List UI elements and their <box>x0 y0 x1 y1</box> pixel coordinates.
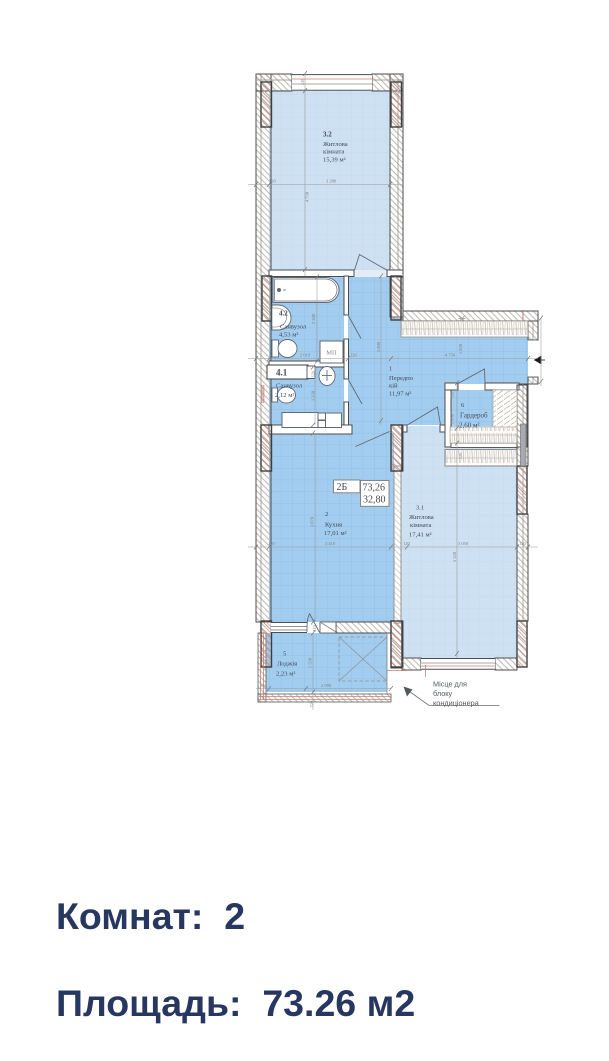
svg-text:3 070: 3 070 <box>310 516 315 527</box>
svg-text:73,26: 73,26 <box>363 483 386 494</box>
svg-text:1: 1 <box>389 366 392 373</box>
svg-text:МП: МП <box>326 350 337 357</box>
svg-text:3 050: 3 050 <box>458 541 469 546</box>
svg-text:блоку: блоку <box>433 689 453 698</box>
svg-text:120: 120 <box>311 370 316 377</box>
svg-text:4.2: 4.2 <box>279 310 288 318</box>
svg-text:2 990: 2 990 <box>321 683 332 688</box>
svg-text:Житлова: Житлова <box>409 514 434 521</box>
svg-text:1 550: 1 550 <box>308 657 313 668</box>
svg-text:2,23 м²: 2,23 м² <box>276 671 295 678</box>
svg-text:2: 2 <box>325 511 328 518</box>
svg-text:32,80: 32,80 <box>363 495 386 506</box>
svg-text:4.1: 4.1 <box>276 368 288 378</box>
svg-text:120: 120 <box>309 700 314 707</box>
svg-text:2 300: 2 300 <box>311 313 316 324</box>
svg-text:Санвузол: Санвузол <box>280 324 307 331</box>
svg-text:2Б: 2Б <box>337 482 348 493</box>
svg-text:410: 410 <box>312 624 317 631</box>
svg-text:17,41 м²: 17,41 м² <box>409 532 432 539</box>
svg-text:Кухня: Кухня <box>325 522 342 529</box>
svg-text:3 800: 3 800 <box>376 341 381 352</box>
svg-text:5 520: 5 520 <box>452 551 457 562</box>
svg-text:17,01 м²: 17,01 м² <box>324 530 347 537</box>
svg-text:1 150: 1 150 <box>311 390 316 401</box>
svg-text:120: 120 <box>269 179 277 184</box>
svg-text:4,53 м²: 4,53 м² <box>279 332 298 339</box>
svg-text:350: 350 <box>260 683 268 688</box>
svg-text:1 450: 1 450 <box>450 413 455 424</box>
svg-text:3 410: 3 410 <box>325 541 336 546</box>
svg-text:430: 430 <box>300 79 305 85</box>
svg-text:120: 120 <box>450 391 455 398</box>
svg-text:3 280: 3 280 <box>326 179 337 184</box>
svg-text:120: 120 <box>458 452 463 459</box>
svg-text:Гардероб: Гардероб <box>460 412 488 420</box>
svg-text:120: 120 <box>350 353 358 358</box>
svg-text:кондиціонера: кондиціонера <box>433 699 480 708</box>
svg-text:4 750: 4 750 <box>445 353 456 358</box>
svg-text:15,39 м²: 15,39 м² <box>323 157 346 164</box>
svg-text:2 010: 2 010 <box>300 353 311 358</box>
svg-text:2,60 м²: 2,60 м² <box>459 422 480 430</box>
svg-text:Житлова: Житлова <box>323 141 348 148</box>
svg-text:2,12 м²: 2,12 м² <box>275 392 294 399</box>
svg-text:1 850: 1 850 <box>458 343 463 354</box>
svg-text:3.1: 3.1 <box>416 505 424 512</box>
svg-text:3.2: 3.2 <box>323 131 332 139</box>
svg-text:кій: кій <box>389 383 398 390</box>
svg-text:Місце для: Місце для <box>433 680 467 689</box>
svg-text:Санвузол: Санвузол <box>276 383 303 390</box>
svg-text:кімната: кімната <box>410 522 431 529</box>
svg-text:Передпо: Передпо <box>389 375 414 382</box>
svg-text:Лоджія: Лоджія <box>277 661 297 668</box>
svg-text:120: 120 <box>268 541 276 546</box>
svg-text:11,97 м²: 11,97 м² <box>389 391 411 398</box>
svg-text:кімната: кімната <box>323 149 344 156</box>
svg-text:4 730: 4 730 <box>305 191 310 202</box>
svg-text:120: 120 <box>403 541 411 546</box>
svg-text:120: 120 <box>519 541 527 546</box>
